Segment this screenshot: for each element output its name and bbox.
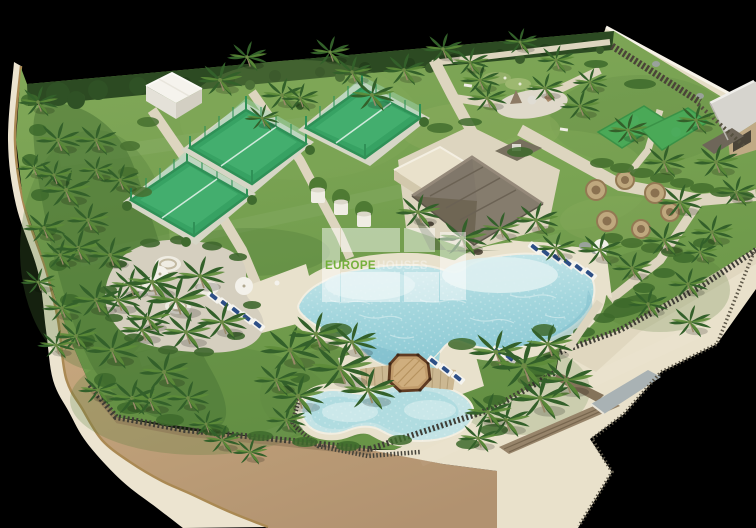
- svg-text:HOUSES: HOUSES: [377, 260, 428, 272]
- svg-text:EUROPE: EUROPE: [325, 260, 376, 272]
